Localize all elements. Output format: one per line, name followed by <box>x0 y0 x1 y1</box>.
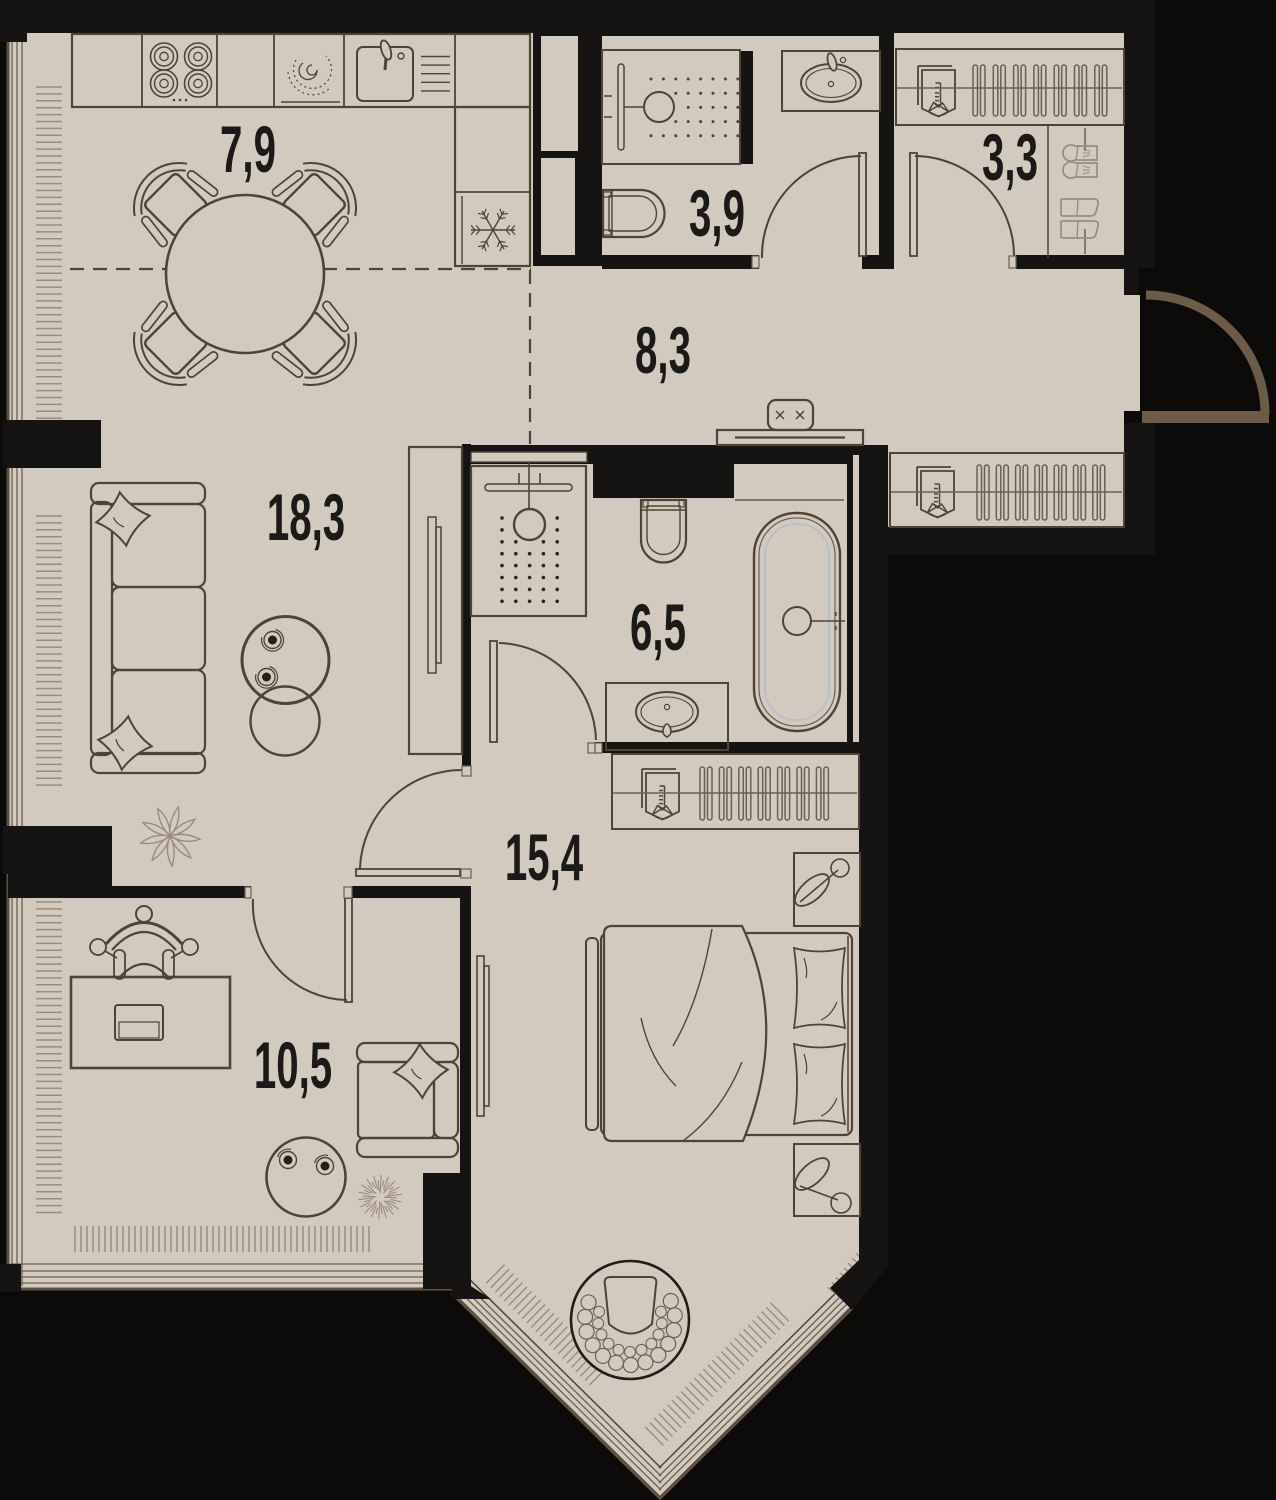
svg-text:3,9: 3,9 <box>689 177 745 251</box>
svg-text:6,5: 6,5 <box>630 591 686 665</box>
svg-text:7,9: 7,9 <box>220 113 276 187</box>
svg-text:8,3: 8,3 <box>635 314 691 388</box>
svg-text:10,5: 10,5 <box>254 1029 332 1103</box>
svg-text:18,3: 18,3 <box>267 481 345 555</box>
svg-text:15,4: 15,4 <box>505 821 584 895</box>
svg-text:3,3: 3,3 <box>982 121 1038 195</box>
